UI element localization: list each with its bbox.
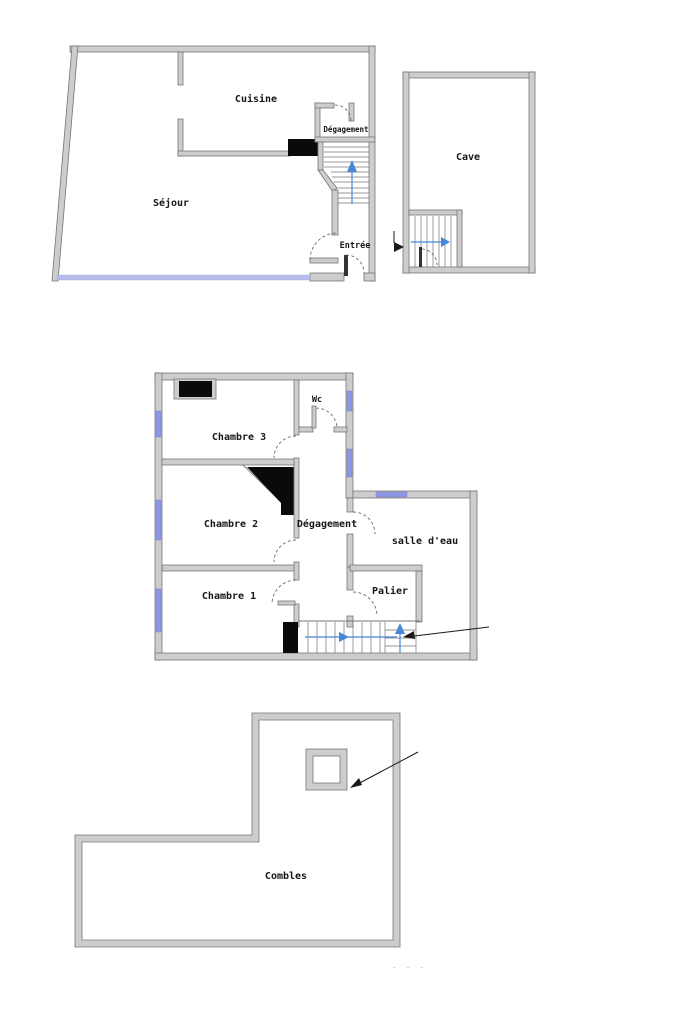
- ff-corridor-wall-left-1: [294, 380, 299, 435]
- cave-plan: Cave: [394, 72, 535, 273]
- room-label-combles: Combles: [265, 871, 307, 882]
- ff-window-chambre3: [156, 411, 161, 437]
- gf-entree-exterior-door-arc: [346, 255, 364, 273]
- gf-entree-inner-door-arc: [310, 233, 337, 260]
- ff-corridor-wall-right-1: [347, 498, 353, 512]
- ff-wall-right-lower: [470, 491, 477, 660]
- ground-floor-plan: Cuisine Séjour Dégagement Entrée: [52, 46, 375, 281]
- ff-divider-ch2-ch1: [162, 565, 298, 571]
- gf-degagement-wall-top: [315, 103, 334, 108]
- cv-entry-arrow-icon: [394, 242, 404, 252]
- gf-bay-window: [57, 275, 310, 280]
- ff-corridor-wall-right-4: [347, 616, 353, 627]
- room-label-palier: Palier: [372, 585, 408, 597]
- gf-entree-exterior-door-leaf: [344, 255, 348, 276]
- ff-wc-wall-bottom-a: [299, 427, 313, 432]
- cb-chimney-shaft-inner: [313, 756, 340, 783]
- ff-divider-palier-top: [350, 565, 422, 571]
- gf-wall-left-slanted: [52, 46, 78, 281]
- room-label-sejour: Séjour: [153, 197, 189, 209]
- cv-wall-top: [403, 72, 535, 78]
- gf-degagement-wall-left: [315, 103, 320, 142]
- floor-plans-drawing: Cuisine Séjour Dégagement Entrée Cave: [0, 0, 685, 1024]
- room-label-degagement-ff: Dégagement: [297, 518, 357, 530]
- room-label-cuisine: Cuisine: [235, 93, 277, 105]
- ff-chimney-block-stairs: [283, 622, 298, 653]
- ff-window-right-b: [347, 449, 352, 477]
- gf-wall-bottom-right-b: [364, 273, 375, 281]
- cv-stair-arrow-icon: [441, 237, 450, 247]
- gf-stair-wall-left-upper: [318, 142, 323, 170]
- ff-divider-ch3-ch2: [162, 459, 298, 465]
- ff-wall-bottom: [155, 653, 477, 660]
- gf-kitchen-wall-stub-bottom: [178, 119, 183, 156]
- attic-plan: Combles: [75, 713, 418, 947]
- cv-wall-right: [529, 72, 535, 273]
- floor-plan-page: Cuisine Séjour Dégagement Entrée Cave: [0, 0, 685, 1024]
- ff-wc-door-arc: [316, 408, 337, 428]
- gf-stair-wall-diagonal: [318, 170, 337, 192]
- gf-stair-wall-left-lower: [332, 190, 338, 235]
- room-label-cave: Cave: [456, 152, 480, 163]
- room-label-entree: Entrée: [340, 240, 371, 251]
- cv-stair-wall-top: [409, 210, 462, 215]
- ff-chambre2-door-arc: [274, 540, 296, 562]
- ff-corridor-wall-left-3: [294, 562, 299, 580]
- gf-stair-treads: [324, 147, 369, 203]
- cv-door-leaf: [419, 247, 422, 267]
- room-label-chambre2: Chambre 2: [204, 519, 258, 530]
- first-floor-plan: Chambre 3 Wc Chambre 2 Dégagement salle …: [155, 373, 489, 660]
- room-label-degagement-gf: Dégagement: [323, 125, 368, 134]
- ff-chambre1-door-arc: [272, 580, 296, 604]
- ff-stair-up-arrow-icon: [395, 623, 405, 634]
- ff-wc-door-leaf: [312, 406, 316, 428]
- cv-wall-bottom: [403, 267, 535, 273]
- room-label-chambre1: Chambre 1: [202, 591, 256, 602]
- cv-wall-left: [403, 72, 409, 273]
- gf-wall-bottom-right-a: [310, 273, 344, 281]
- gf-stair-wall-top: [315, 137, 375, 142]
- ff-window-chambre2: [156, 500, 161, 540]
- gf-degagement-door-leaf: [349, 103, 354, 121]
- cv-stair-wall-right: [457, 210, 462, 267]
- gf-wall-top: [70, 46, 375, 52]
- ff-wall-extension-top: [353, 491, 477, 498]
- ff-window-chambre1: [156, 589, 161, 632]
- ff-wc-wall-bottom-b: [334, 427, 347, 432]
- footer-mark: - - -: [392, 963, 426, 972]
- gf-kitchen-wall-stub-top: [178, 52, 183, 85]
- ff-window-right-a: [347, 391, 352, 411]
- room-label-salledeau: salle d'eau: [392, 536, 458, 547]
- room-label-chambre3: Chambre 3: [212, 432, 266, 443]
- cb-pointer-arrow-icon: [350, 778, 362, 788]
- ff-chambre3-door-arc: [274, 436, 296, 458]
- ff-chimney-block-ch2: [247, 467, 297, 515]
- gf-entree-door-leaf-inner: [310, 258, 338, 263]
- cv-door-arc: [422, 249, 437, 265]
- ff-window-salledeau: [376, 492, 407, 497]
- cb-pointer-arrow-line: [354, 752, 418, 786]
- gf-kitchen-wall-bottom: [178, 151, 290, 156]
- cb-outer-walls: [75, 713, 400, 947]
- room-label-wc: Wc: [312, 395, 322, 405]
- ff-chambre1-door-leaf: [278, 601, 295, 605]
- ff-corridor-wall-right-2: [347, 534, 353, 567]
- ff-divider-palier-right: [416, 571, 422, 622]
- ff-chimney-block-ch3: [179, 381, 212, 397]
